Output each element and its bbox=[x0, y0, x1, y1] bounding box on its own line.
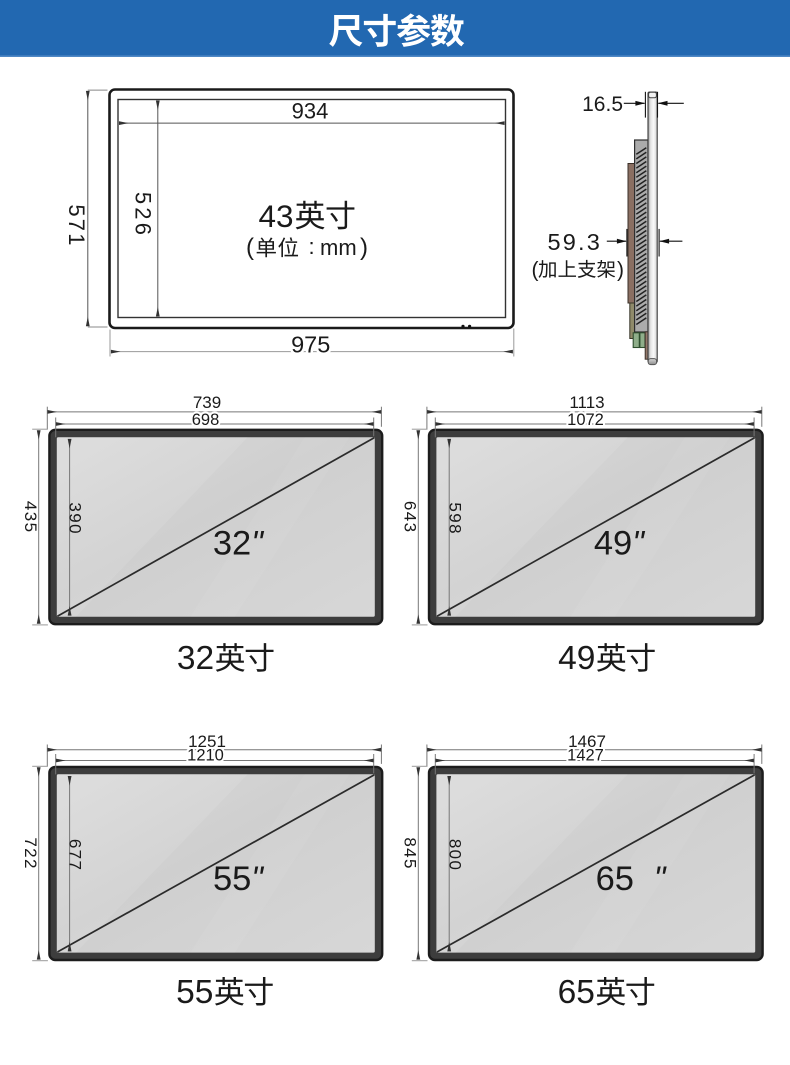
svg-text:): ) bbox=[360, 234, 368, 261]
svg-text:1072: 1072 bbox=[567, 411, 604, 429]
svg-text:390: 390 bbox=[66, 502, 85, 535]
svg-text:): ) bbox=[617, 259, 624, 282]
svg-text:(: ( bbox=[246, 234, 254, 261]
svg-text:1210: 1210 bbox=[187, 746, 224, 764]
svg-text:": " bbox=[654, 860, 667, 897]
svg-text:55: 55 bbox=[213, 860, 251, 898]
svg-text:43: 43 bbox=[259, 198, 294, 234]
svg-text:16.5: 16.5 bbox=[582, 93, 623, 116]
svg-text:526: 526 bbox=[130, 192, 155, 238]
svg-text:1113: 1113 bbox=[569, 393, 604, 412]
svg-text:": " bbox=[632, 524, 645, 561]
svg-text::: : bbox=[309, 234, 315, 259]
svg-text:698: 698 bbox=[192, 411, 220, 429]
svg-text:": " bbox=[251, 524, 264, 561]
svg-text:722: 722 bbox=[21, 837, 40, 870]
svg-text:65: 65 bbox=[596, 860, 634, 898]
svg-text:65: 65 bbox=[558, 974, 595, 1011]
svg-text:677: 677 bbox=[66, 839, 85, 872]
svg-text:435: 435 bbox=[21, 501, 40, 534]
svg-text:598: 598 bbox=[445, 502, 464, 535]
svg-text:32: 32 bbox=[213, 525, 251, 563]
svg-text:32: 32 bbox=[177, 640, 214, 677]
svg-text:1427: 1427 bbox=[567, 746, 604, 764]
svg-text:975: 975 bbox=[291, 331, 330, 357]
svg-text:845: 845 bbox=[400, 837, 419, 870]
svg-text:643: 643 bbox=[400, 501, 419, 534]
svg-text:(: ( bbox=[532, 259, 539, 282]
svg-text:49: 49 bbox=[594, 525, 632, 563]
svg-text:800: 800 bbox=[445, 839, 464, 872]
svg-text:mm: mm bbox=[320, 235, 357, 260]
svg-text:571: 571 bbox=[64, 204, 89, 247]
svg-text:55: 55 bbox=[176, 974, 213, 1011]
svg-text:49: 49 bbox=[558, 640, 595, 677]
svg-text:59.3: 59.3 bbox=[547, 229, 602, 255]
svg-text:934: 934 bbox=[292, 98, 329, 123]
svg-text:": " bbox=[251, 860, 264, 897]
svg-text:739: 739 bbox=[193, 393, 221, 412]
